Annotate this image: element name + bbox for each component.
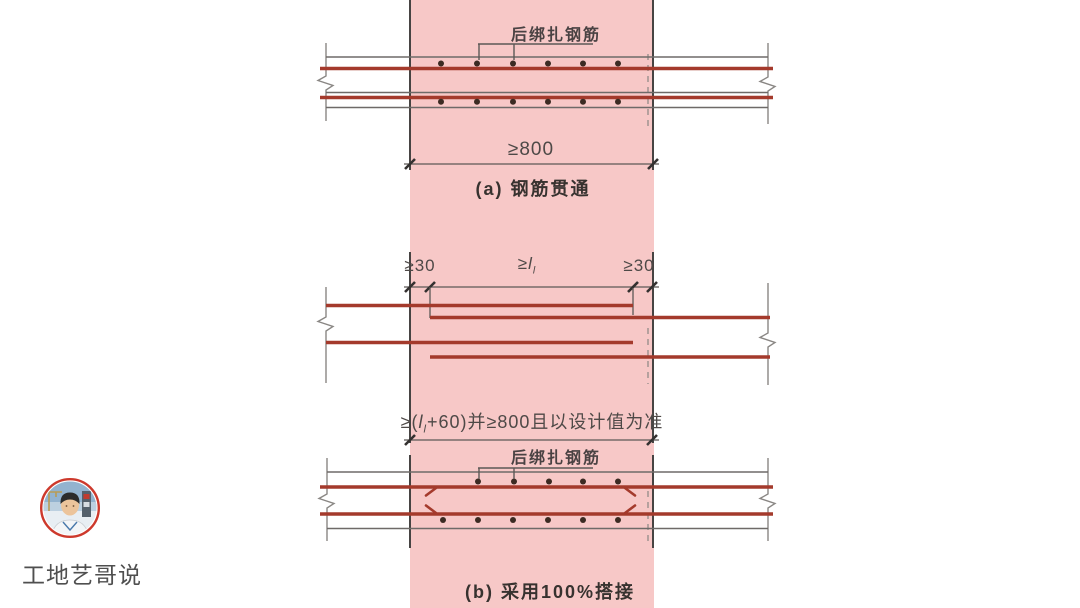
tie-bar-dot [615,61,621,67]
rebar-detail-figure: 后绑扎钢筋 ≥800 (a) 钢筋贯通 ≥30 ≥ll ≥30 ≥(ll+60)… [0,0,1080,608]
tie-bar-dots-top [475,479,621,485]
tie-bar-dot [438,61,444,67]
post-tied-rebar-label-b: 后绑扎钢筋 [511,444,601,468]
tie-bar-dot [510,517,516,523]
tie-bar-dot [545,61,551,67]
lap-length-dimension: ≥ll [518,254,536,276]
break-line-symbol [760,283,775,385]
tie-bar-dot [615,99,621,105]
watermark-name: 工地艺哥说 [22,556,142,590]
avatar [39,477,101,539]
tie-bar-dots-bottom [440,517,621,523]
tie-bar-dot [580,61,586,67]
tie-bar-dot [615,517,621,523]
tie-bar-dot [438,99,444,105]
tie-bar-dot [475,517,481,523]
tie-bar-dot [440,517,446,523]
tie-bar-dot [475,479,481,485]
caption-a: (a) 钢筋贯通 [476,175,591,201]
tie-bar-dot [545,99,551,105]
tie-bar-dot [474,61,480,67]
tie-bar-dot [546,479,552,485]
tie-bar-dot [510,99,516,105]
width-dimension-label-a: ≥800 [508,139,554,161]
tie-bar-dot [615,479,621,485]
tie-bar-dot [580,479,586,485]
tie-bar-dots-bottom [438,99,621,105]
break-line-symbol [318,287,333,383]
tie-bar-dot [510,61,516,67]
edge-gap-dimension-right: ≥30 [623,256,654,276]
rebar-hook [426,506,436,514]
tie-bar-dot [580,99,586,105]
break-line-symbol [760,43,775,124]
caption-b: (b) 采用100%搭接 [465,578,635,604]
section-b-drawing [319,455,775,548]
post-tied-rebar-label-a: 后绑扎钢筋 [511,21,601,45]
tie-bar-dots-top [438,61,621,67]
tie-bar-dot [580,517,586,523]
total-width-dimension: ≥(ll+60)并≥800且以设计值为准 [401,408,664,436]
tie-bar-dot [474,99,480,105]
detail-linework [0,0,1080,608]
rebar-hook [625,488,635,496]
break-line-symbol [318,43,333,121]
tie-bar-dot [511,479,517,485]
edge-gap-dimension-left: ≥30 [404,256,435,276]
rebar-hook [625,506,635,514]
rebar-hook [426,488,436,496]
tie-bar-dot [545,517,551,523]
